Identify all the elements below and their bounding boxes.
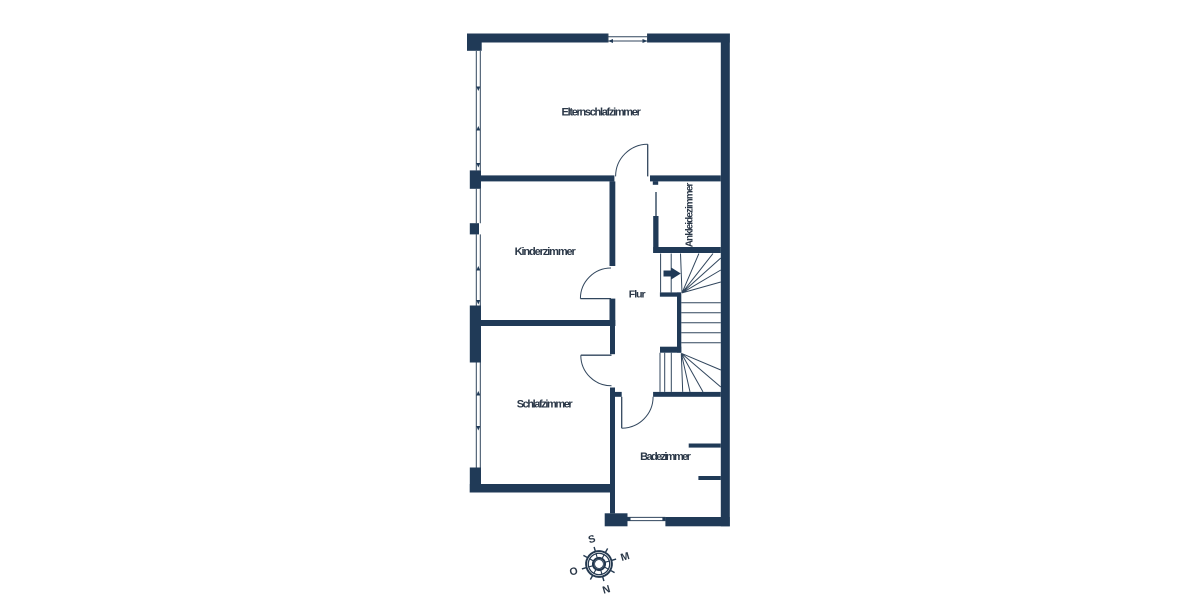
svg-text:Badezimmer: Badezimmer [640, 451, 691, 463]
svg-text:Schlafzimmer: Schlafzimmer [517, 399, 574, 411]
svg-text:Elternschlafzimmer: Elternschlafzimmer [562, 107, 642, 119]
svg-text:Ankleidezimmer: Ankleidezimmer [685, 183, 696, 248]
svg-text:Flur: Flur [629, 289, 646, 301]
svg-text:Kinderzimmer: Kinderzimmer [515, 246, 577, 258]
